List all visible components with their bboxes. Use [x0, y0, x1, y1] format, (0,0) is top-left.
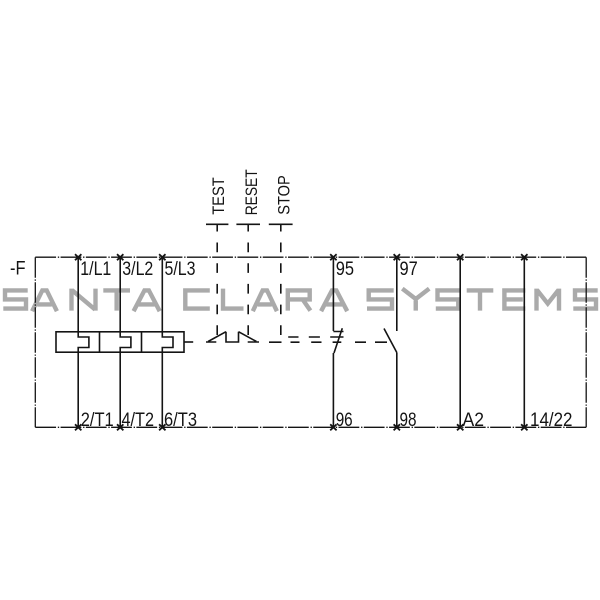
svg-text:2/T1: 2/T1 [81, 409, 114, 431]
svg-text:RESET: RESET [243, 169, 261, 215]
svg-text:96: 96 [336, 409, 353, 431]
svg-text:TEST: TEST [210, 177, 228, 215]
svg-text:98: 98 [400, 409, 417, 431]
svg-text:3/L2: 3/L2 [122, 258, 153, 280]
svg-text:6/T3: 6/T3 [164, 409, 197, 431]
svg-text:97: 97 [400, 258, 418, 280]
svg-text:5/L3: 5/L3 [165, 258, 196, 280]
svg-text:95: 95 [336, 258, 354, 280]
svg-text:STOP: STOP [276, 175, 294, 215]
svg-text:-F: -F [10, 257, 26, 279]
svg-text:A2: A2 [463, 409, 485, 431]
svg-text:4/T2: 4/T2 [122, 409, 155, 431]
svg-text:1/L1: 1/L1 [80, 258, 111, 280]
svg-text:14/22: 14/22 [530, 409, 573, 431]
